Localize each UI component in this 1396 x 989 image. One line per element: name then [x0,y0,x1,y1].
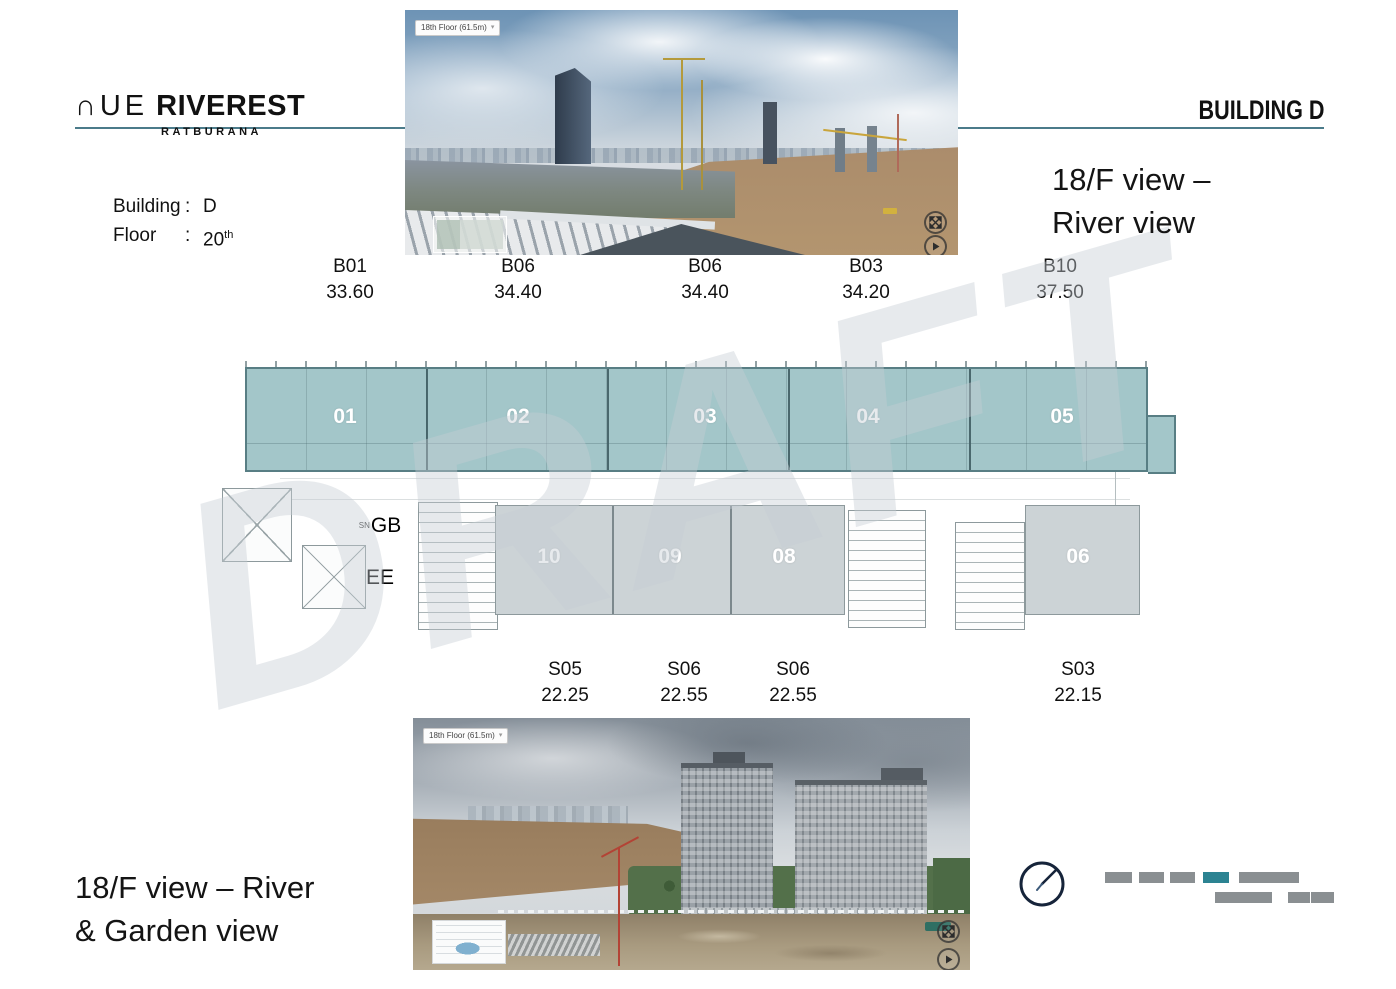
minimap-thumbnail[interactable] [433,216,507,253]
fullscreen-icon [929,216,942,229]
building-info-value: D [203,192,217,221]
bridge-pylon [835,128,845,172]
floor-height-badge[interactable]: 18th Floor (61.5m)▾ [423,728,508,744]
condo-tower-b [795,780,927,911]
compass-widget [1016,858,1068,910]
site-plan-bar-current-building [1203,872,1229,883]
fullscreen-button[interactable] [937,920,960,943]
brand-name: RIVEREST [156,90,305,122]
bridge-pylon-2 [867,126,877,172]
fullscreen-icon [942,925,955,938]
stairwell-2 [848,510,926,628]
site-plan-bar [1239,872,1299,883]
floor-plan-sheet: ∩UERIVEREST RATBURANA BUILDING D Buildin… [0,0,1396,989]
unit-label-s06-2: S0622.55 [733,657,853,709]
minimap-thumbnail[interactable] [432,920,506,964]
crane-2 [701,80,703,190]
plan-label-ee: EE [340,566,420,590]
glass-tower [555,68,591,164]
site-plan-bar [1105,872,1132,883]
top-view-caption: 18/F view – River view [1052,158,1211,244]
brand-prefix: ∩UE [75,90,148,122]
unit-label-s03: S0322.15 [1018,657,1138,709]
chevron-down-icon: ▾ [491,23,495,33]
fullscreen-button[interactable] [924,211,947,234]
floor-info-label: Floor [113,221,185,254]
unit-label-b06-2: B0634.40 [645,254,765,306]
corridor [280,478,1130,500]
building-info: Building : D Floor : 20th [113,192,233,254]
plan-unit-02: 02 [488,405,548,429]
chevron-down-icon: ▾ [499,731,503,741]
plan-unit-09: 09 [640,545,700,569]
site-fence [498,910,968,913]
stairwell-1 [418,502,498,630]
play-icon [930,241,941,252]
plan-unit-01: 01 [315,405,375,429]
band-connector [1115,472,1116,506]
play-button[interactable] [937,948,960,970]
floor-info-colon: : [185,221,203,254]
play-button[interactable] [924,235,947,255]
plan-label-gb: SNGB [340,514,420,538]
top-panorama-photo[interactable]: 18th Floor (61.5m)▾ [405,10,958,255]
site-plan-bar [1288,892,1310,903]
plan-unit-05: 05 [1032,405,1092,429]
unit-label-s05: S0522.25 [505,657,625,709]
bottom-view-caption: 18/F view – River & Garden view [75,866,314,952]
plan-unit-10: 10 [519,545,579,569]
pipe-stack [508,934,600,956]
thin-tower [763,102,777,164]
upper-band-extension [1148,415,1176,474]
site-plan-bar [1170,872,1195,883]
crane-3 [897,114,899,172]
brand-logo: ∩UERIVEREST RATBURANA [75,90,305,138]
site-plan-bar [1215,892,1272,903]
floor-plan: 01 02 03 04 05 10 09 08 06 SNGB EE [220,360,1180,650]
unit-label-b10: B1037.50 [1000,254,1120,306]
bottom-panorama-photo[interactable]: 18th Floor (61.5m)▾ [413,718,970,970]
unit-label-s06-1: S0622.55 [624,657,744,709]
unit-label-b03: B0334.20 [806,254,926,306]
unit-label-b01: B0133.60 [290,254,410,306]
play-icon [943,954,954,965]
floor-height-badge[interactable]: 18th Floor (61.5m)▾ [415,20,500,36]
building-info-colon: : [185,192,203,221]
plan-unit-08: 08 [754,545,814,569]
red-crane [618,848,620,966]
crane-jib [663,58,705,60]
brand-subtitle: RATBURANA [161,126,305,138]
condo-tower-a [681,763,773,911]
stairwell-3 [955,522,1025,630]
header-rule-right [958,127,1324,129]
site-plan-bar [1311,892,1334,903]
floor-info-value: 20th [203,221,233,254]
plan-unit-04: 04 [838,405,898,429]
boat [883,208,897,214]
unit-label-b06-1: B0634.40 [458,254,578,306]
plan-unit-03: 03 [675,405,735,429]
compass-icon [1016,858,1068,910]
elevator-shaft-1 [222,488,292,562]
plan-unit-06: 06 [1048,545,1108,569]
building-info-label: Building [113,192,185,221]
building-title: BUILDING D [1198,95,1324,126]
site-plan-bar [1139,872,1164,883]
crane [681,58,683,190]
